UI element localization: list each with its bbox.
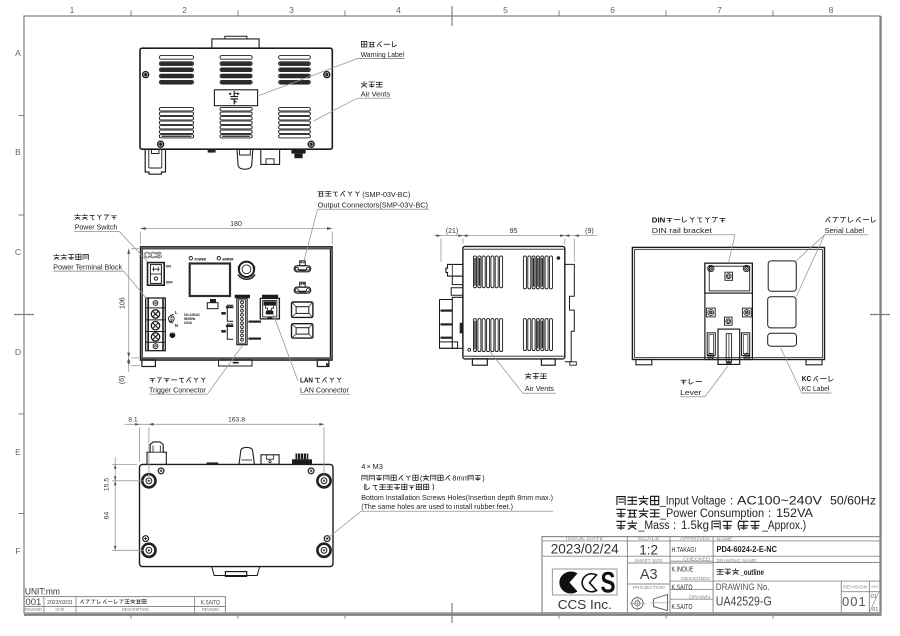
svg-text:_Approx.): _Approx.) <box>761 520 806 532</box>
svg-text:_outline: _outline <box>740 567 764 577</box>
svg-text:DRAWING No.: DRAWING No. <box>716 582 770 593</box>
svg-text:B: B <box>15 147 21 157</box>
svg-text:15.5: 15.5 <box>104 478 111 491</box>
svg-text:C: C <box>15 247 21 257</box>
svg-text:3: 3 <box>289 5 294 15</box>
svg-text:8mm: 8mm <box>452 474 469 483</box>
svg-text:SHEET: SHEET <box>871 585 879 589</box>
svg-text:K.INOUE: K.INOUE <box>672 567 694 574</box>
svg-text:Power Terminal Block: Power Terminal Block <box>53 262 122 271</box>
svg-text:6: 6 <box>610 5 615 15</box>
svg-text:7: 7 <box>717 5 722 15</box>
svg-text:(21): (21) <box>446 228 458 235</box>
svg-text:A3: A3 <box>640 567 658 583</box>
svg-text:ON: ON <box>166 264 172 268</box>
svg-text:4: 4 <box>361 462 365 471</box>
svg-text:NAME: NAME <box>717 536 733 541</box>
svg-text:8.1: 8.1 <box>128 417 138 424</box>
svg-text:DIN rail bracket: DIN rail bracket <box>652 226 713 235</box>
svg-text:OFF: OFF <box>166 281 174 285</box>
svg-text:Serial Label: Serial Label <box>825 226 865 235</box>
svg-text:Trigger Connector: Trigger Connector <box>149 385 206 394</box>
svg-text:180: 180 <box>230 221 242 228</box>
svg-text:2: 2 <box>182 5 187 15</box>
svg-text:5: 5 <box>503 5 508 15</box>
svg-text:N: N <box>175 323 178 328</box>
svg-text:F: F <box>15 546 20 556</box>
svg-text:_Power Consumption: _Power Consumption <box>659 508 764 520</box>
svg-text:(6): (6) <box>119 376 126 385</box>
svg-text:H.TAKAGI: H.TAKAGI <box>672 547 697 554</box>
svg-text:M3: M3 <box>373 462 383 471</box>
svg-text:KC Label: KC Label <box>802 384 830 393</box>
svg-text:Lever: Lever <box>680 388 702 397</box>
svg-text:PROJECTION: PROJECTION <box>633 585 665 590</box>
svg-text:LAN Connector: LAN Connector <box>300 385 349 394</box>
svg-text:Bottom Installation Screws Hol: Bottom Installation Screws Holes(Inserti… <box>361 493 553 502</box>
svg-text:1.5kg: 1.5kg <box>681 520 709 532</box>
svg-text:2023/02/24: 2023/02/24 <box>551 541 619 557</box>
svg-text:K.SAITO: K.SAITO <box>672 604 693 611</box>
svg-text:4: 4 <box>396 5 401 15</box>
svg-text:95: 95 <box>510 228 518 235</box>
svg-text:163.8: 163.8 <box>228 417 245 424</box>
svg-text:REVISED: REVISED <box>202 607 220 612</box>
svg-text:Warning Label: Warning Label <box>361 50 405 59</box>
svg-text:E: E <box>15 447 21 457</box>
svg-text:Air Vents: Air Vents <box>361 89 391 98</box>
svg-text:001: 001 <box>25 597 41 607</box>
svg-text:64: 64 <box>104 512 111 520</box>
svg-text:DATE: DATE <box>56 607 65 612</box>
svg-text:DRAWN: DRAWN <box>689 594 710 599</box>
svg-text:REVISION: REVISION <box>843 585 867 590</box>
svg-text::: : <box>673 520 676 532</box>
svg-text:(SMP-03V-BC): (SMP-03V-BC) <box>362 190 410 199</box>
svg-text:REVISION: REVISION <box>25 607 42 612</box>
svg-text:50/60Hz: 50/60Hz <box>830 496 876 508</box>
svg-text:POWER: POWER <box>195 257 207 261</box>
svg-text:LAN: LAN <box>300 376 313 385</box>
svg-text:_Input Voltage: _Input Voltage <box>659 496 726 508</box>
svg-text:Power Switch: Power Switch <box>75 223 118 232</box>
svg-text:K.SAITO: K.SAITO <box>672 585 693 592</box>
svg-text:_Mass: _Mass <box>638 520 670 532</box>
svg-text:×: × <box>367 462 371 471</box>
svg-text:(The same holes are used to in: (The same holes are used to install rubb… <box>361 502 513 511</box>
svg-text:001: 001 <box>842 594 867 609</box>
svg-text:SHEET SIZE: SHEET SIZE <box>635 558 663 563</box>
svg-text:DIN: DIN <box>652 215 666 224</box>
svg-text:CHECKED: CHECKED <box>683 556 710 561</box>
svg-text:01: 01 <box>872 607 878 613</box>
svg-text:DRAWING NAME: DRAWING NAME <box>717 558 757 563</box>
svg-text:DESCRIPTION: DESCRIPTION <box>122 607 149 612</box>
svg-text:PD4-6024-2-E-NC: PD4-6024-2-E-NC <box>717 545 778 554</box>
svg-text:CCS Inc.: CCS Inc. <box>558 598 612 612</box>
svg-text:1:2: 1:2 <box>639 543 658 558</box>
svg-text:K.SAITO: K.SAITO <box>201 599 220 606</box>
svg-text:S: S <box>601 567 616 600</box>
svg-text:152VA: 152VA <box>776 508 813 520</box>
svg-text:2023/03/31: 2023/03/31 <box>47 600 73 606</box>
svg-text:AC100~240V: AC100~240V <box>737 496 822 508</box>
svg-text:L: L <box>175 310 178 315</box>
svg-text:152VA: 152VA <box>184 321 192 325</box>
svg-text:APPROVED: APPROVED <box>680 536 710 541</box>
svg-text:A: A <box>15 48 21 58</box>
svg-text:SCALE: SCALE <box>638 536 660 541</box>
svg-text:UA42529-G: UA42529-G <box>716 595 772 609</box>
svg-text:DESIGNED: DESIGNED <box>681 576 710 581</box>
svg-text:CCS: CCS <box>144 251 163 260</box>
svg-text:D: D <box>15 347 21 357</box>
svg-text:KC: KC <box>802 374 812 383</box>
svg-text:Air Vents: Air Vents <box>525 384 554 393</box>
svg-text::: : <box>768 508 771 520</box>
svg-text:8: 8 <box>829 5 834 15</box>
svg-text::: : <box>730 496 733 508</box>
svg-text:106: 106 <box>120 297 127 309</box>
svg-text:ERROR: ERROR <box>223 257 234 261</box>
svg-text:Output Connectors(SMP-03V-BC): Output Connectors(SMP-03V-BC) <box>318 200 429 209</box>
svg-text:1: 1 <box>70 5 75 15</box>
svg-text:(9): (9) <box>585 228 594 235</box>
